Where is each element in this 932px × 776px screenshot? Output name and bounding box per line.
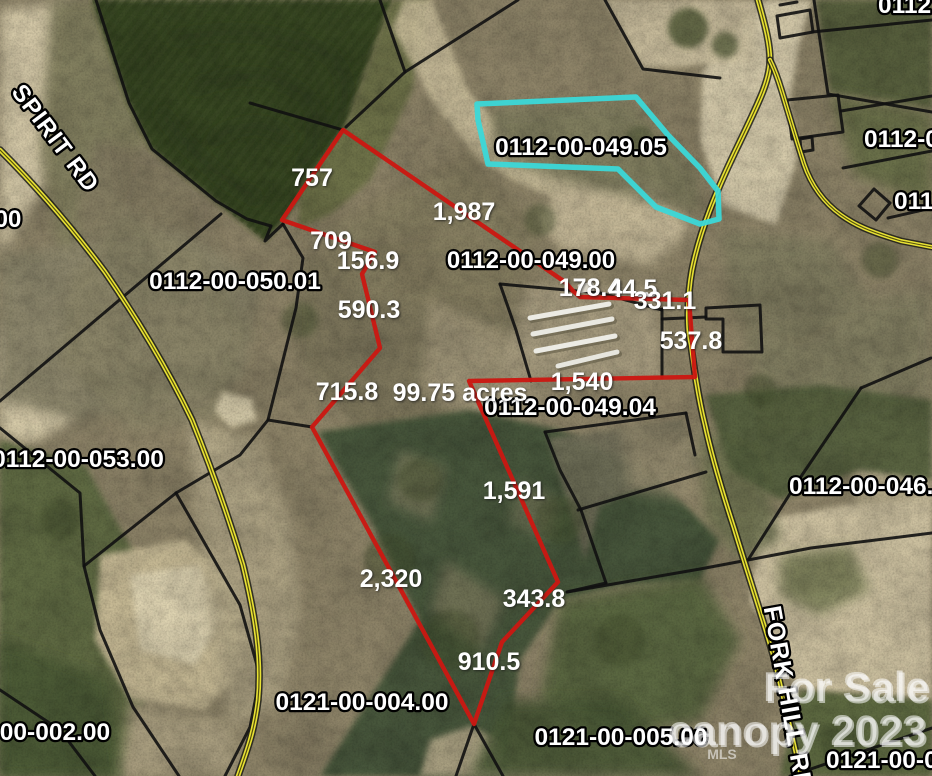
svg-text:0112-00-049.05: 0112-00-049.05 bbox=[495, 134, 667, 161]
svg-text:0121-00-004.00: 0121-00-004.00 bbox=[275, 689, 448, 716]
svg-text:0112-00-049.00: 0112-00-049.00 bbox=[447, 247, 615, 274]
svg-text:156.9: 156.9 bbox=[337, 247, 400, 275]
svg-text:1,591: 1,591 bbox=[483, 477, 546, 505]
svg-text:0112-00-046.00: 0112-00-046.00 bbox=[789, 473, 932, 500]
svg-text:757: 757 bbox=[291, 164, 333, 192]
svg-text:1,987: 1,987 bbox=[433, 198, 496, 226]
svg-text:00: 00 bbox=[0, 206, 21, 233]
svg-text:331.1: 331.1 bbox=[634, 287, 697, 315]
svg-text:99.75 acres: 99.75 acres bbox=[393, 379, 528, 407]
svg-text:715.8: 715.8 bbox=[316, 378, 379, 406]
svg-text:537.8: 537.8 bbox=[660, 327, 723, 355]
svg-text:0112-00-050.01: 0112-00-050.01 bbox=[149, 268, 321, 295]
svg-text:910.5: 910.5 bbox=[458, 648, 521, 676]
svg-text:1,540: 1,540 bbox=[551, 368, 614, 396]
svg-text:MLS: MLS bbox=[707, 746, 737, 762]
svg-text:0112-00-053.00: 0112-00-053.00 bbox=[0, 446, 164, 473]
svg-text:0112: 0112 bbox=[878, 0, 931, 19]
svg-text:2,320: 2,320 bbox=[360, 565, 423, 593]
svg-text:For Sale: For Sale bbox=[763, 663, 929, 710]
svg-text:0112: 0112 bbox=[894, 188, 932, 215]
svg-text:0112-00-049: 0112-00-049 bbox=[864, 126, 932, 153]
svg-text:1-00-002.00: 1-00-002.00 bbox=[0, 719, 110, 746]
svg-text:590.3: 590.3 bbox=[338, 296, 401, 324]
svg-text:343.8: 343.8 bbox=[503, 585, 566, 613]
